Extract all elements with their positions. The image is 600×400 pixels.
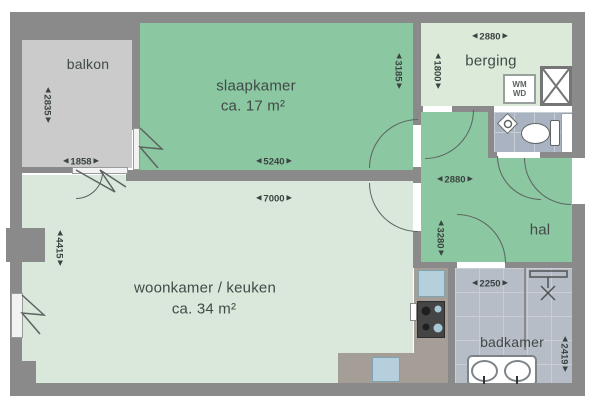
room-label-slaapkamer: slaapkamer [216,78,296,95]
wall [505,262,572,268]
dim-hal-depth: ◀3280▶ [435,220,446,255]
washer-label: WM [512,80,526,89]
wall [413,167,421,183]
room-label-berging: berging [465,53,516,70]
room-area-woonkamer: ca. 34 m² [172,301,236,318]
wall [10,361,36,383]
kitchen-worktop-icon [418,270,445,297]
wall [448,268,455,383]
wall [10,167,72,173]
dim-balkon-width: ◀1858▶ [63,157,98,168]
room-label-woonkamer: woonkamer / keuken [134,280,276,297]
dim-slaapkamer-depth: ◀3185▶ [393,53,404,88]
dim-berging-depth: ◀1800▶ [432,53,443,88]
wall [413,231,421,262]
wall [572,204,585,383]
room-label-balkon: balkon [67,56,109,72]
wall [488,152,497,158]
toilet-tank-icon [550,120,560,146]
window-icon [133,128,140,170]
dim-woonkamer-depth: ◀4415▶ [54,230,65,265]
dim-balkon-depth: ◀2835▶ [42,87,53,122]
sink-basin-icon [504,360,531,382]
room-label-badkamer: badkamer [480,334,544,350]
stove-icon [417,301,445,338]
washer-dryer-box: WM WD [503,74,536,104]
wall [10,383,585,396]
room-area-slaapkamer: ca. 17 m² [221,98,285,115]
wall [136,12,585,23]
floor-plan: WM WD [0,0,600,400]
dim-berging-width: ◀2880▶ [472,32,507,43]
wall [10,12,136,40]
wall-column [6,228,45,262]
dim-badkamer-depth: ◀2419▶ [559,336,570,371]
window-icon [11,293,23,338]
dryer-label: WD [513,89,526,98]
dim-slaapkamer-width: ◀5240▶ [256,157,291,168]
toilet-icon [521,123,550,144]
sink-basin-icon [471,360,498,382]
oven-handle-icon [410,303,417,321]
room-label-hal: hal [530,222,551,239]
dim-hal-width: ◀2880▶ [437,175,472,186]
kitchen-sink-icon [372,357,400,382]
wall [572,12,585,158]
shaft-box [540,66,572,106]
dim-badkamer-width: ◀2250▶ [472,279,507,290]
wall [415,106,423,112]
wall [488,112,494,152]
wall [132,23,140,130]
dim-woonkamer-width: ◀7000▶ [256,194,291,205]
wall [126,170,421,181]
